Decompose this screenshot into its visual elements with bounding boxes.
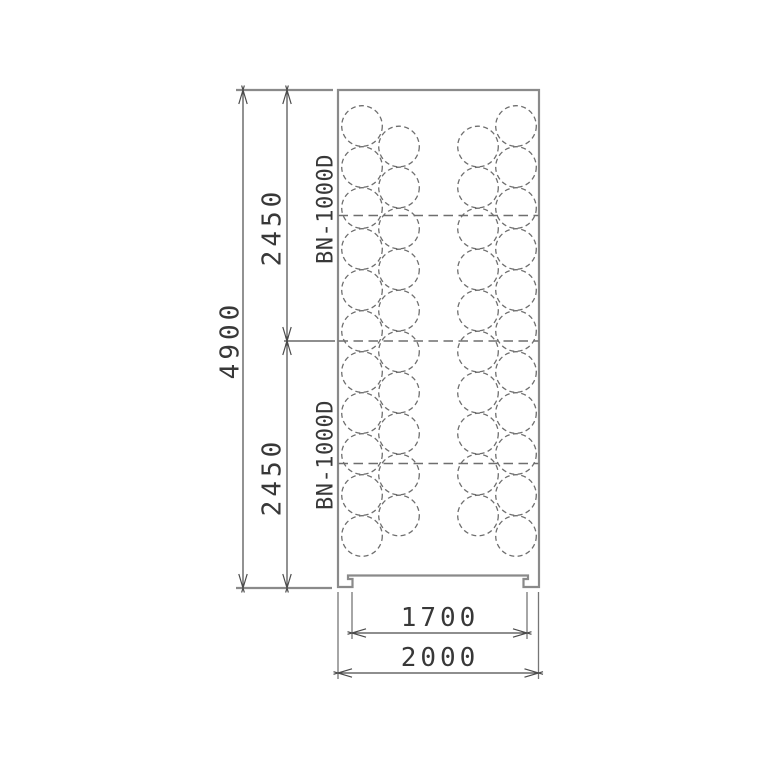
diffuser-circle <box>342 352 383 393</box>
diffuser-circle <box>342 270 383 311</box>
diffuser-circle <box>496 393 537 434</box>
diffuser-circle <box>496 311 537 352</box>
diffuser-circle <box>379 372 420 413</box>
diffuser-circle <box>496 106 537 147</box>
diffuser-circle <box>458 413 499 454</box>
diffuser-circle <box>379 454 420 495</box>
diffuser-circle <box>342 434 383 475</box>
diffuser-circle <box>342 188 383 229</box>
diffuser-circle <box>379 331 420 372</box>
diffuser-circle <box>342 393 383 434</box>
diffuser-circle <box>496 270 537 311</box>
dim-overall-height-label: 4900 <box>216 301 246 380</box>
tank-outline <box>338 90 539 587</box>
diffuser-circle <box>496 475 537 516</box>
diffuser-circle <box>496 188 537 229</box>
dim-lower-unit-height-label: 2450 <box>258 438 288 517</box>
diffuser-circle <box>379 290 420 331</box>
diffuser-circle <box>458 372 499 413</box>
unit-label-top: BN-1000D <box>313 154 338 264</box>
unit-divider-lines <box>339 216 539 464</box>
diffuser-circle <box>458 454 499 495</box>
diffuser-circle <box>458 249 499 290</box>
diffuser-circle <box>379 208 420 249</box>
diffuser-circle <box>458 208 499 249</box>
diffuser-circle <box>342 311 383 352</box>
dim-upper-unit-height-label: 2450 <box>258 188 288 267</box>
diffuser-circle <box>496 516 537 557</box>
diffuser-circle <box>458 126 499 167</box>
diffuser-circle <box>342 475 383 516</box>
diffuser-circle <box>342 516 383 557</box>
diffuser-circle <box>342 106 383 147</box>
dim-inner-width-label: 1700 <box>401 603 480 633</box>
diffuser-circle <box>458 331 499 372</box>
diffuser-circle <box>342 229 383 270</box>
diffuser-circle <box>379 167 420 208</box>
diffuser-circle <box>496 434 537 475</box>
diffuser-circle <box>379 495 420 536</box>
diffuser-circles <box>342 106 537 557</box>
diffuser-circle <box>458 167 499 208</box>
diffuser-circle <box>496 147 537 188</box>
diffuser-circle <box>379 413 420 454</box>
dim-overall-width-label: 2000 <box>401 643 480 673</box>
diffuser-circle <box>458 290 499 331</box>
diffuser-circle <box>342 147 383 188</box>
diffuser-circle <box>379 126 420 167</box>
plan-drawing: 4900 2450 2450 BN-1000D BN-1000D 1700 20… <box>0 0 768 768</box>
unit-label-bottom: BN-1000D <box>313 400 338 510</box>
drawing-canvas: 4900 2450 2450 BN-1000D BN-1000D 1700 20… <box>0 0 768 768</box>
diffuser-circle <box>496 352 537 393</box>
diffuser-circle <box>496 229 537 270</box>
diffuser-circle <box>379 249 420 290</box>
diffuser-circle <box>458 495 499 536</box>
